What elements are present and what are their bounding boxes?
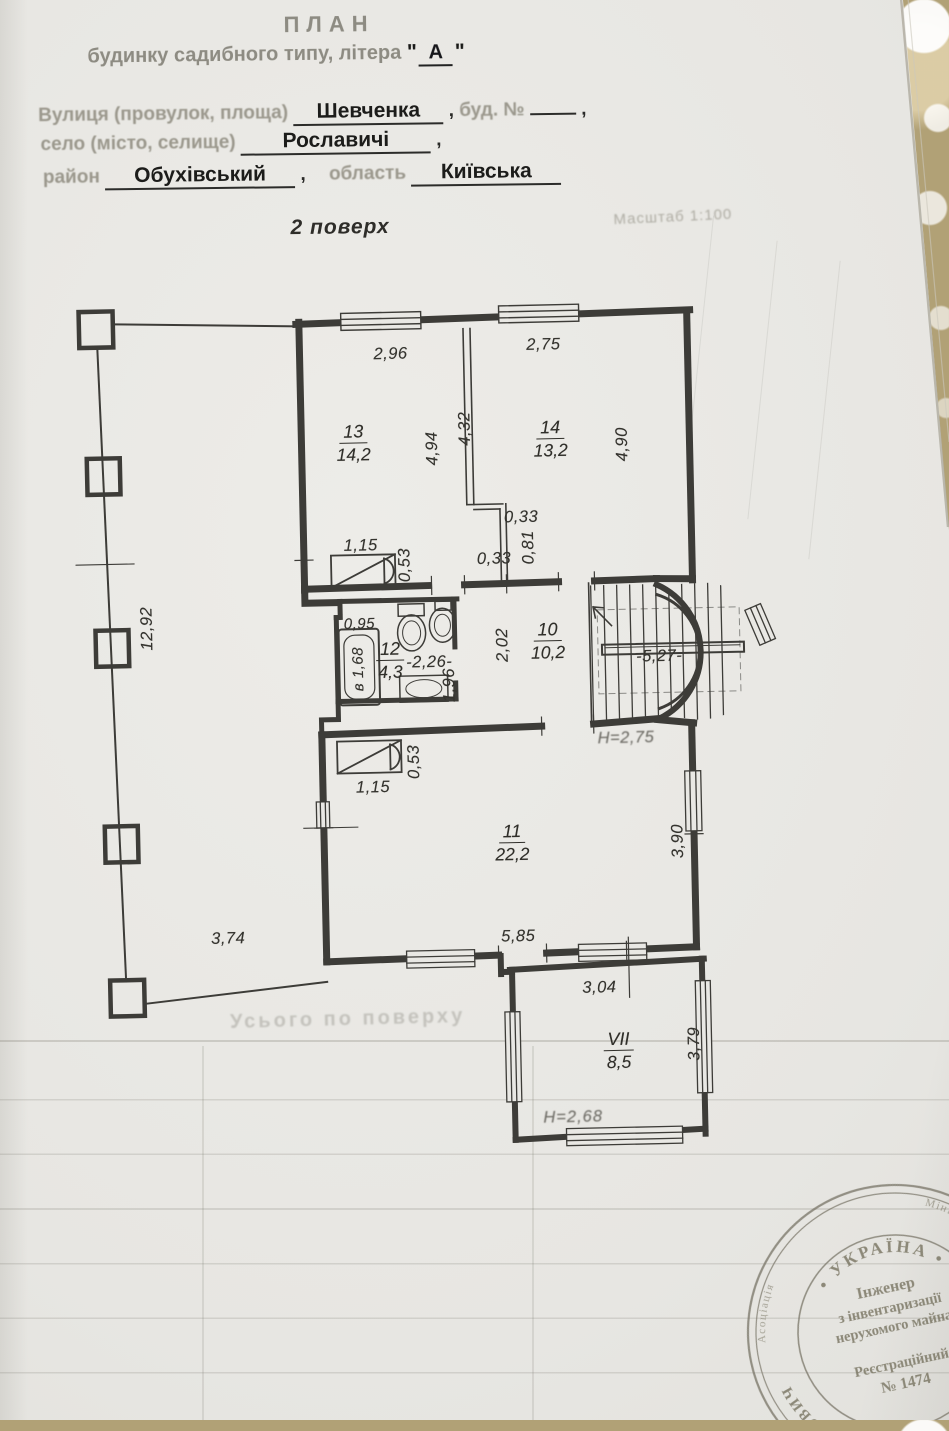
stamp-ring-left: Асоціація: [744, 1279, 788, 1345]
photo-of-document: { "page": { "title": "ПЛАН", "subtitle":…: [0, 0, 949, 1420]
round-stamp: • УКРАЇНА • РЕВАЧОВ ВІКТОР МИКОЛАЙОВИЧ А…: [0, 0, 949, 1420]
